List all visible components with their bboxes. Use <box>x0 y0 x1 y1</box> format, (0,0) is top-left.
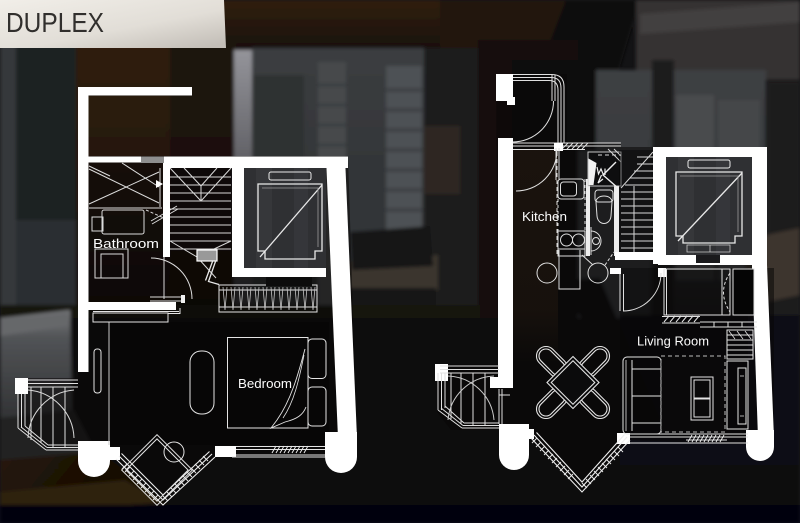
svg-text:Living Room: Living Room <box>637 334 709 349</box>
svg-text:Kitchen: Kitchen <box>522 210 567 224</box>
svg-text:Bedroom: Bedroom <box>238 376 292 391</box>
svg-text:Bathroom: Bathroom <box>93 237 159 251</box>
svg-text:DUPLEX: DUPLEX <box>6 7 104 38</box>
